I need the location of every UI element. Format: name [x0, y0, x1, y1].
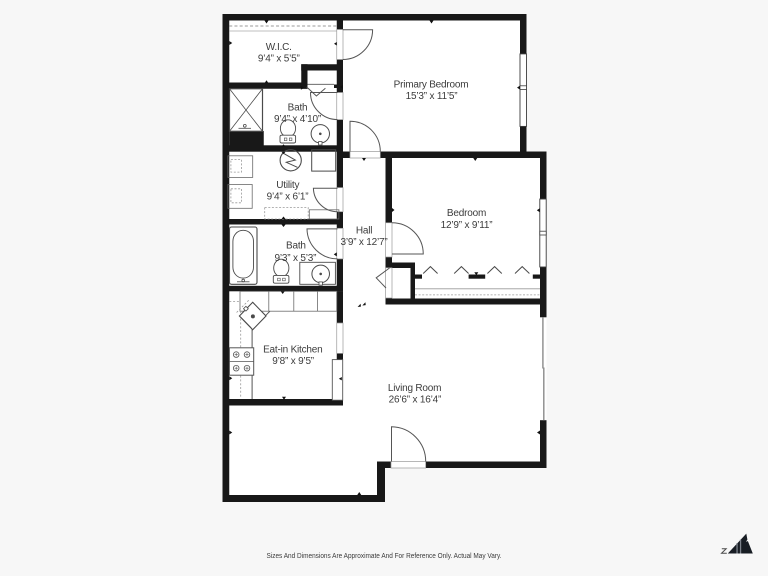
svg-text:W.I.C.: W.I.C. [266, 42, 292, 53]
svg-text:Eat-in Kitchen: Eat-in Kitchen [263, 345, 322, 356]
svg-text:26’6” x 16’4”: 26’6” x 16’4” [389, 395, 441, 406]
svg-text:9’8” x 9’5”: 9’8” x 9’5” [272, 356, 314, 367]
svg-text:Bath: Bath [286, 240, 306, 251]
svg-text:Living Room: Living Room [388, 383, 441, 394]
svg-text:Hall: Hall [356, 225, 372, 236]
svg-text:9’3” x 5’3”: 9’3” x 5’3” [275, 253, 317, 264]
svg-text:Primary Bedroom: Primary Bedroom [394, 80, 469, 91]
svg-text:Bath: Bath [288, 102, 308, 113]
svg-text:Bedroom: Bedroom [447, 208, 486, 219]
svg-text:3’9” x 12’7”: 3’9” x 12’7” [340, 237, 387, 248]
svg-text:15’3” x 11’5”: 15’3” x 11’5” [406, 91, 458, 102]
svg-text:Utility: Utility [276, 180, 299, 191]
svg-text:9’4” x 5’5”: 9’4” x 5’5” [258, 54, 300, 65]
svg-text:9’4” x 4’10”: 9’4” x 4’10” [274, 114, 321, 125]
svg-text:12’9” x 9’11”: 12’9” x 9’11” [441, 220, 493, 231]
svg-text:Sizes And Dimensions Are Appro: Sizes And Dimensions Are Approximate And… [267, 553, 502, 560]
svg-text:9’4” x 6’1”: 9’4” x 6’1” [267, 192, 309, 203]
